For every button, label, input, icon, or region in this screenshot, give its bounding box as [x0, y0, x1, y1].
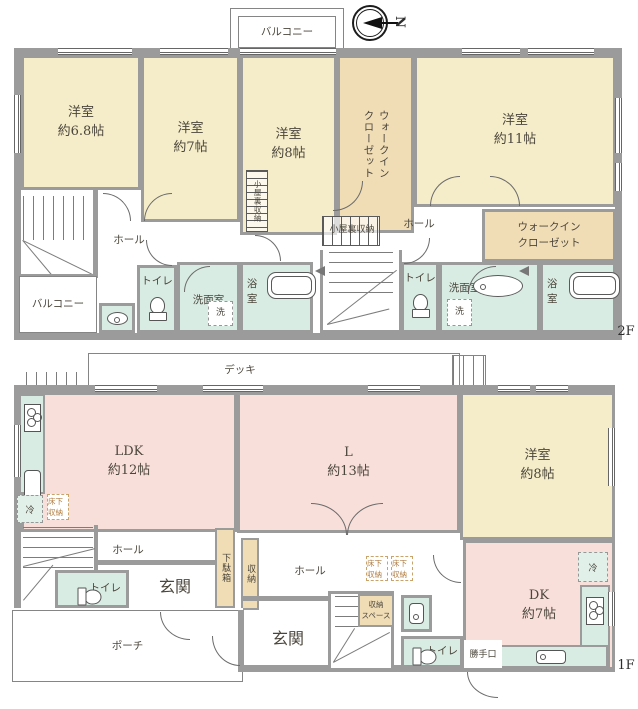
wall — [95, 560, 217, 565]
shoe-cabinet-label: 下駄箱 — [219, 553, 231, 583]
hall-2f-right-label: ホール — [390, 217, 448, 232]
washing-machine-box: 洗 — [208, 301, 233, 326]
floor1-tag: 1F — [614, 658, 638, 674]
window — [203, 385, 263, 392]
window — [462, 48, 520, 55]
attic-storage-mid-label: 小屋裏収納 — [310, 223, 394, 238]
window — [615, 163, 622, 191]
balcony-top: バルコニー — [238, 16, 336, 48]
deck-steps — [452, 355, 486, 386]
toilet-2f-left-label: トイレ — [141, 274, 173, 289]
window — [368, 385, 420, 392]
window — [58, 48, 132, 55]
stairs-2f-left — [23, 196, 93, 240]
kitchen-sink-icon — [536, 650, 566, 664]
underfloor-storage-left: 床下 収納 — [47, 494, 69, 520]
toilet-icon — [77, 588, 101, 605]
window — [14, 95, 21, 153]
window — [536, 385, 568, 392]
bathroom-2f-right: 浴室 — [540, 262, 616, 333]
wall — [243, 596, 333, 601]
toilet-icon — [149, 297, 166, 321]
bathroom-2f-left-label: 浴室 — [243, 277, 261, 307]
window — [95, 385, 157, 392]
balcony-2f-left: バルコニー — [19, 276, 97, 333]
attic-storage-small-label: 小屋裏収納 — [248, 172, 266, 230]
porch: ポーチ — [12, 610, 243, 682]
window — [615, 98, 622, 153]
washbasin-room — [401, 595, 432, 632]
walkin-closet-right-label: ウォークイン クローゼット — [518, 220, 581, 250]
window — [14, 425, 21, 477]
toilet-room-1f-right: トイレ — [401, 636, 463, 668]
window — [240, 48, 336, 55]
entrance-left-label: 玄関 — [145, 578, 205, 596]
back-door-label: 勝手口 — [463, 648, 503, 662]
folding-door-marker — [514, 266, 529, 276]
utility-sink-box — [99, 303, 135, 333]
window — [608, 592, 615, 626]
window — [528, 48, 594, 55]
bathtub-icon — [569, 272, 620, 299]
toilet-room-2f-right: トイレ — [401, 262, 439, 333]
toilet-2f-right-label: トイレ — [404, 271, 436, 286]
underfloor-storage-mid-2: 床下 収納 — [391, 556, 413, 581]
room-dk-label: DK 約7帖 — [522, 587, 556, 625]
stove-icon — [586, 597, 604, 625]
toilet-icon — [412, 294, 429, 318]
folding-door-marker — [310, 266, 325, 276]
deck-label: デッキ — [180, 362, 300, 378]
storage-space-label: 収納 スペース — [361, 600, 390, 620]
washbasin-icon — [409, 603, 424, 624]
hall-1f-left-label: ホール — [98, 543, 158, 558]
compass-icon: N — [348, 2, 404, 44]
walkin-closet-left-label: ウォークイン クローゼット — [360, 110, 390, 179]
room-western-8-1f: 洋室 約8帖 — [460, 392, 615, 540]
wall — [93, 190, 98, 278]
utility-sink-icon — [107, 312, 128, 325]
bathroom-2f-right-label: 浴室 — [543, 277, 562, 307]
stairs-2f-center-box — [320, 250, 402, 333]
storage-strip-label: 収納 — [244, 564, 256, 584]
kitchen-counter-left — [19, 394, 45, 494]
stove-icon — [24, 404, 41, 432]
compass-north-label: N — [390, 15, 408, 29]
room-living: L 約13帖 — [237, 392, 460, 533]
entrance-mid-label: 玄関 — [258, 630, 318, 648]
refrigerator-box-left: 冷 — [17, 495, 43, 523]
hall-1f-mid-label: ホール — [280, 564, 340, 579]
bathtub-icon — [267, 272, 316, 299]
room-western-6-8: 洋室 約6.8帖 — [21, 55, 141, 190]
window — [498, 385, 530, 392]
underfloor-storage-mid-1: 床下 収納 — [366, 556, 388, 581]
kitchen-counter-dk-bottom — [498, 645, 608, 668]
storage-space: 収納 スペース — [358, 594, 394, 627]
washing-machine-box: 洗 — [447, 299, 472, 326]
refrigerator-box-right: 冷 — [578, 552, 608, 582]
floor2-tag: 2F — [614, 324, 638, 340]
toilet-room-2f-left: トイレ — [137, 265, 177, 333]
window — [160, 48, 228, 55]
walkin-closet-right: ウォークイン クローゼット — [482, 209, 616, 262]
floor-plan: バルコニー N 洋室 約6.8帖 洋室 約7帖 洋室 約8帖 ウォークイン クロ… — [0, 0, 638, 709]
stairs-2f-center — [329, 252, 393, 302]
window — [608, 428, 615, 486]
toilet-icon — [412, 648, 436, 665]
bathroom-2f-left: 浴室 — [240, 262, 313, 333]
door-arc — [467, 672, 498, 698]
shoe-cabinet: 下駄箱 — [215, 528, 235, 608]
toilet-room-1f-left: トイレ — [55, 570, 129, 608]
